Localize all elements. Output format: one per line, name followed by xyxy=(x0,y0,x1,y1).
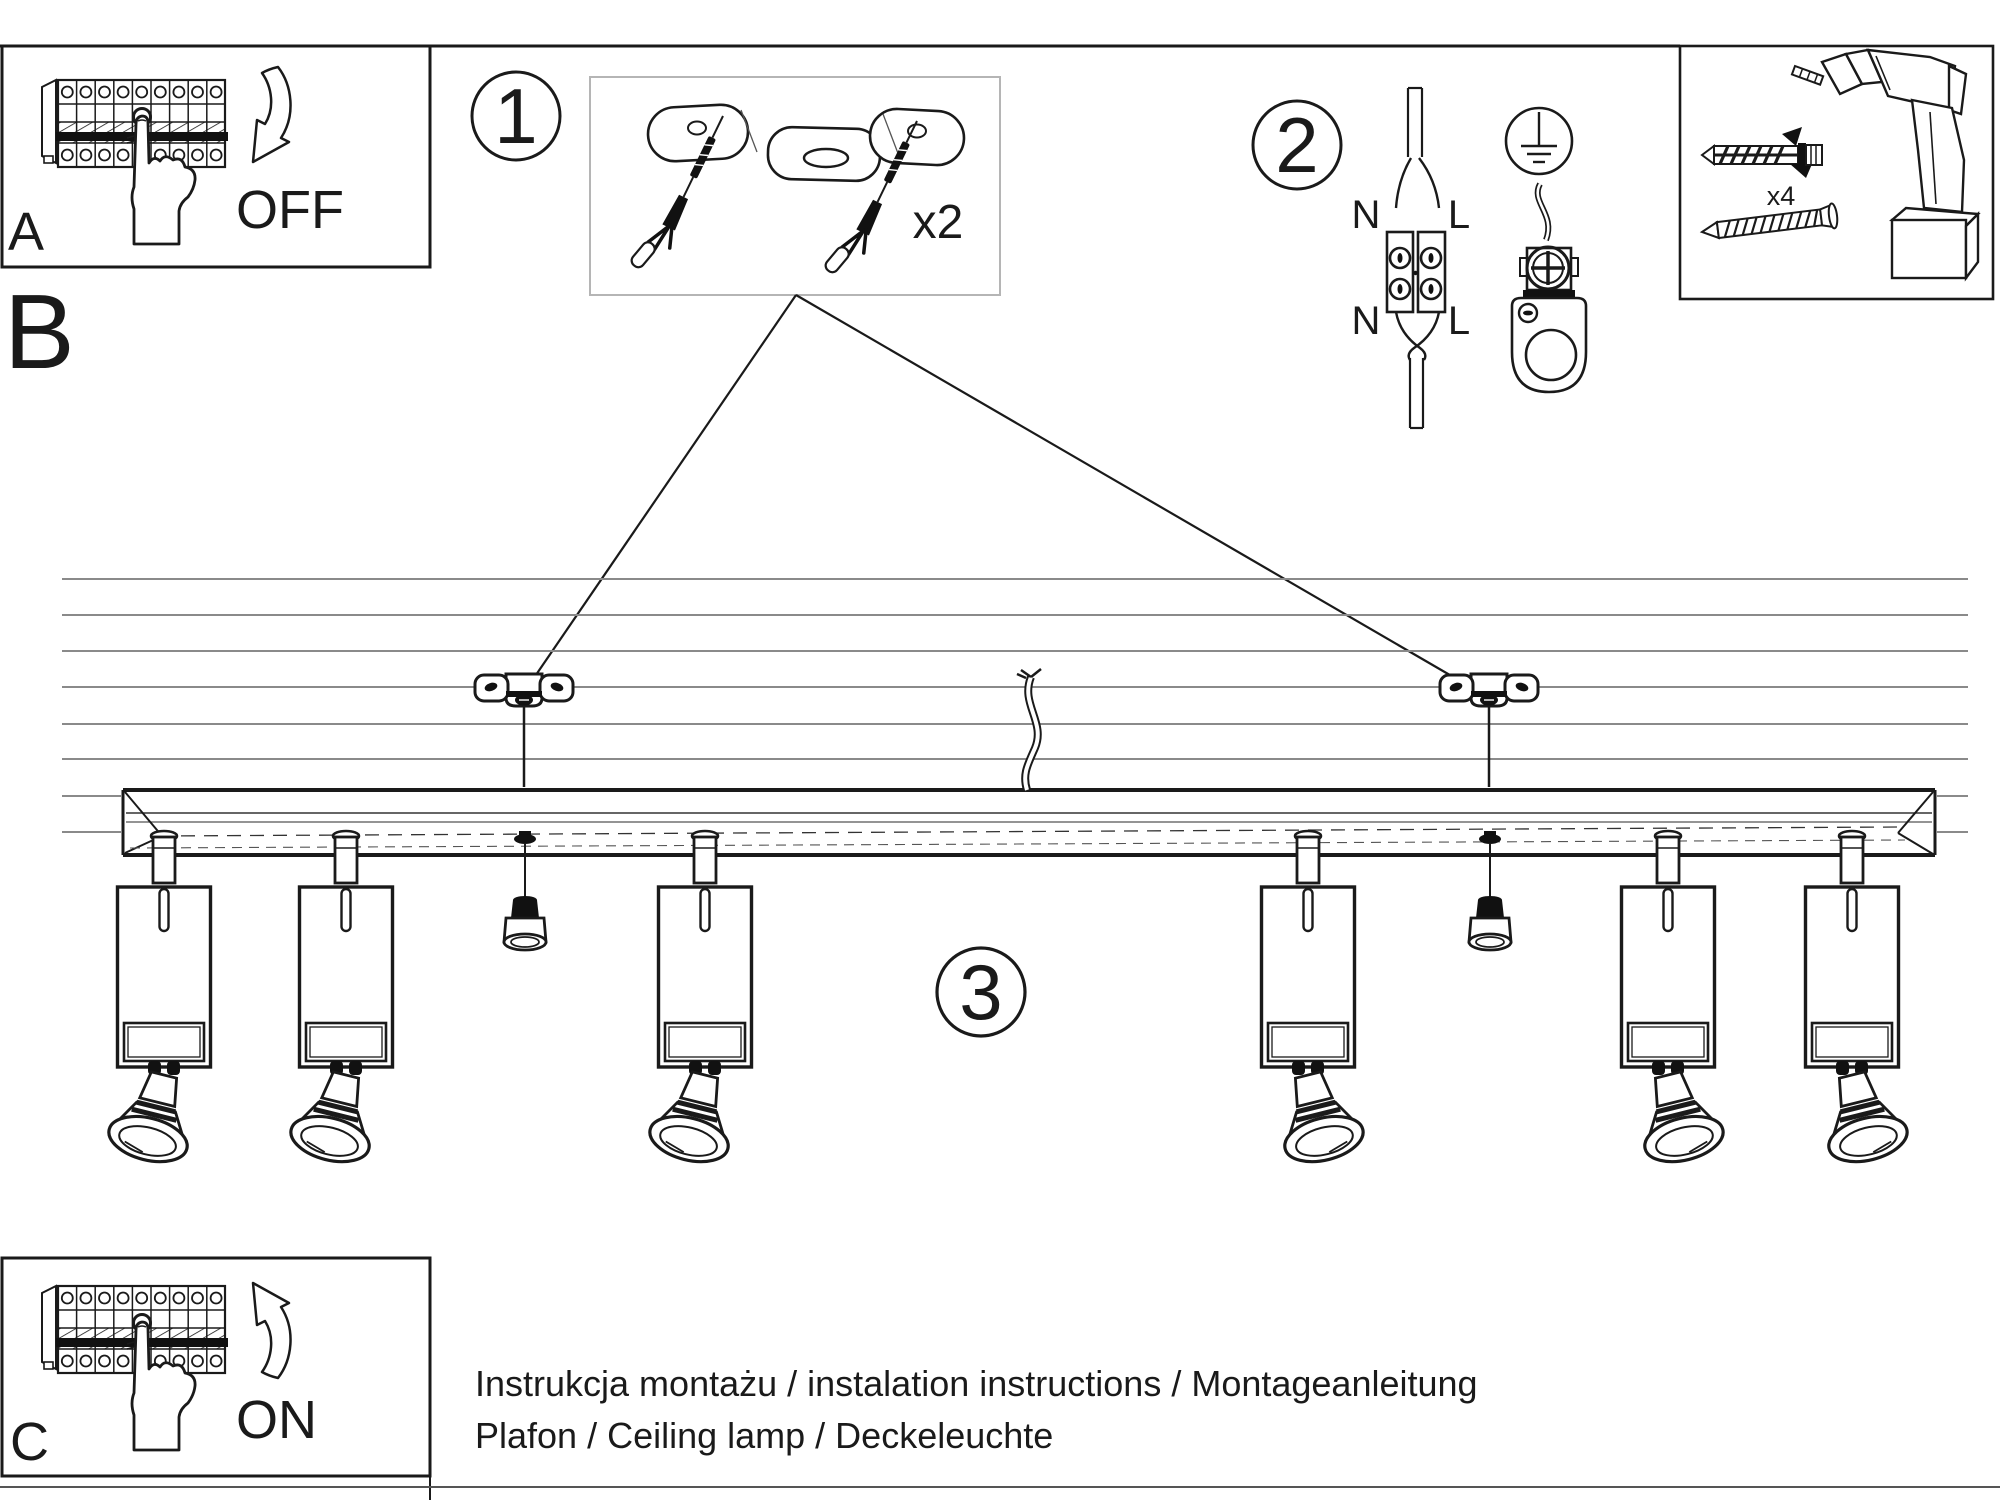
ground-wire xyxy=(1538,184,1549,240)
label-step-a: A xyxy=(8,202,44,262)
panel-off-box: A OFF xyxy=(2,46,430,267)
guide-line-right xyxy=(796,295,1455,678)
spotlight-5 xyxy=(1622,831,1728,1169)
step2-group: 2 N L N L xyxy=(1253,88,1586,428)
label-n-bottom: N xyxy=(1352,299,1381,343)
mains-wiring-icon xyxy=(1387,88,1445,428)
label-on: ON xyxy=(236,1390,317,1450)
guide-line-left xyxy=(527,295,796,688)
step2-number: 2 xyxy=(1275,101,1318,189)
label-l-bottom: L xyxy=(1448,299,1470,343)
spotlight-3 xyxy=(645,831,751,1169)
spotlight-2 xyxy=(286,831,392,1169)
spotlight-1 xyxy=(104,831,210,1169)
footer-title-line2: Plafon / Ceiling lamp / Deckeleuchte xyxy=(475,1415,1053,1456)
label-off: OFF xyxy=(236,180,344,240)
label-n-top: N xyxy=(1352,193,1381,237)
spotlight-4 xyxy=(1262,831,1368,1169)
step3-number: 3 xyxy=(959,948,1002,1036)
label-x2: x2 xyxy=(913,196,964,249)
label-step-b: B xyxy=(4,273,75,391)
earth-symbol-icon xyxy=(1506,108,1572,174)
label-step-c: C xyxy=(10,1412,49,1472)
tools-box: x4 xyxy=(1680,46,1993,299)
label-x4: x4 xyxy=(1767,181,1796,211)
label-l-top: L xyxy=(1448,193,1470,237)
instruction-sheet: A OFF B 1 x2 2 xyxy=(0,0,2000,1500)
panel-on-box: C ON xyxy=(2,1258,430,1500)
step1-number: 1 xyxy=(494,72,537,160)
ceiling-bracket-left xyxy=(475,674,573,706)
ground-terminal-icon xyxy=(1512,247,1586,392)
parts-box xyxy=(590,77,1000,295)
spotlight-6 xyxy=(1806,831,1912,1169)
footer-title-line1: Instrukcja montażu / instalation instruc… xyxy=(475,1363,1478,1404)
ceiling-bracket-right xyxy=(1440,674,1538,706)
